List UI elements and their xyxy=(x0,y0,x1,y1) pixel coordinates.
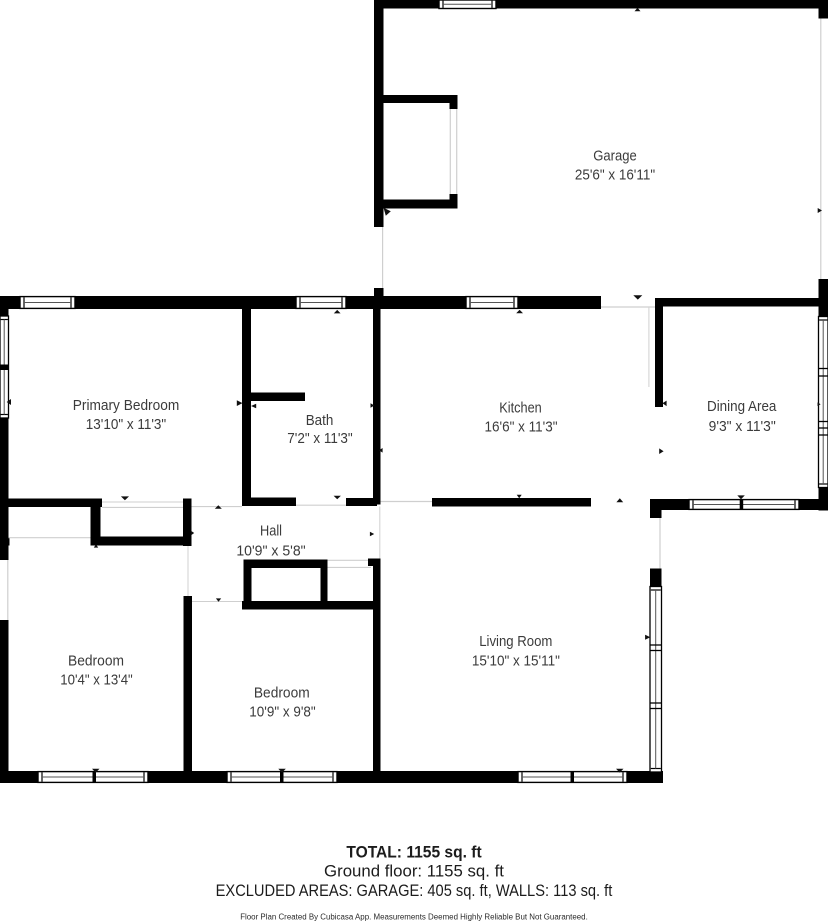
svg-text:Kitchen: Kitchen xyxy=(499,399,542,416)
svg-text:10'9" x 5'8": 10'9" x 5'8" xyxy=(236,543,305,560)
svg-text:10'9" x 9'8": 10'9" x 9'8" xyxy=(249,704,315,721)
svg-text:25'6" x 16'11": 25'6" x 16'11" xyxy=(575,166,655,183)
svg-text:Hall: Hall xyxy=(260,523,282,540)
svg-text:Bath: Bath xyxy=(306,412,334,429)
svg-text:TOTAL: 1155 sq. ft: TOTAL: 1155 sq. ft xyxy=(346,844,482,862)
svg-text:9'3" x 11'3": 9'3" x 11'3" xyxy=(709,418,776,435)
svg-text:Living Room: Living Room xyxy=(479,633,552,650)
svg-text:EXCLUDED AREAS: GARAGE: 405 sq: EXCLUDED AREAS: GARAGE: 405 sq. ft, WALL… xyxy=(216,882,613,900)
svg-text:16'6" x 11'3": 16'6" x 11'3" xyxy=(485,419,558,436)
svg-text:Floor Plan Created By Cubicasa: Floor Plan Created By Cubicasa App. Meas… xyxy=(240,912,588,921)
svg-text:Dining Area: Dining Area xyxy=(707,398,777,415)
svg-text:Garage: Garage xyxy=(593,148,637,165)
svg-text:7'2" x 11'3": 7'2" x 11'3" xyxy=(287,430,352,447)
svg-text:13'10" x 11'3": 13'10" x 11'3" xyxy=(86,416,166,433)
svg-text:Bedroom: Bedroom xyxy=(68,652,124,669)
svg-text:Primary Bedroom: Primary Bedroom xyxy=(73,397,180,414)
svg-text:15'10" x 15'11": 15'10" x 15'11" xyxy=(472,653,560,670)
svg-text:Ground floor: 1155 sq. ft: Ground floor: 1155 sq. ft xyxy=(324,863,504,881)
svg-text:Bedroom: Bedroom xyxy=(254,684,310,701)
svg-text:10'4" x 13'4": 10'4" x 13'4" xyxy=(60,672,133,689)
